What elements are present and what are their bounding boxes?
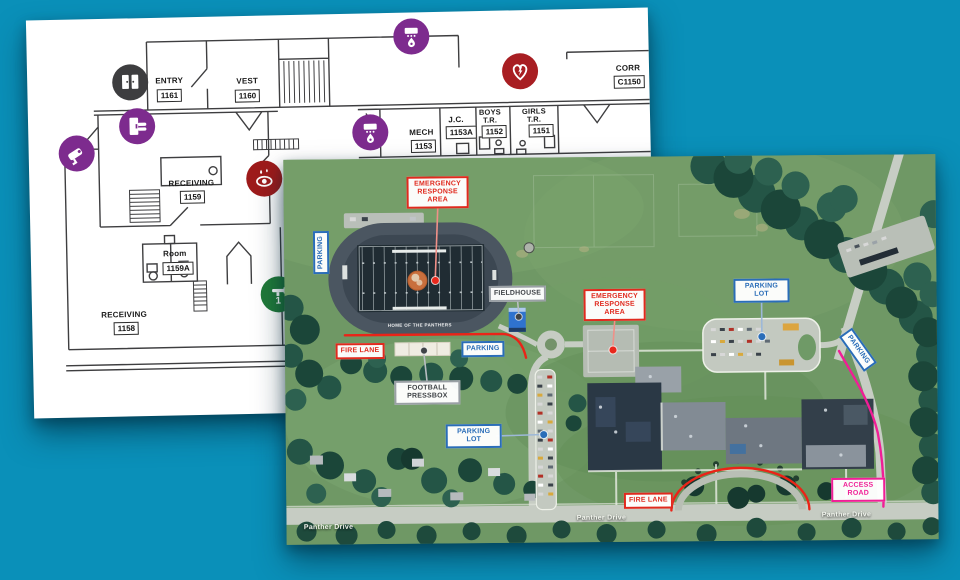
- fieldhouse-dot: [515, 313, 522, 320]
- room-number-receiving-1158: 1158: [114, 322, 140, 336]
- pressbox-dot: [420, 347, 427, 354]
- stairs-left: [129, 190, 160, 223]
- roundabout: [537, 330, 565, 358]
- hatch-strip: [253, 139, 298, 150]
- fire-lane-label-arc: FIRE LANE: [624, 492, 673, 508]
- room-number-corr: C1150: [614, 75, 645, 89]
- room-label-boys-line2: T.R.: [479, 117, 501, 126]
- street-label-panther-drive-west: Panther Drive: [304, 524, 353, 531]
- room-number-mech: 1153: [411, 139, 437, 153]
- parking-label-pressbox: PARKING: [461, 341, 504, 357]
- street-label-panther-drive-center: Panther Drive: [577, 514, 626, 521]
- parking-label-west: PARKING: [313, 231, 329, 274]
- room-label-girls: GIRLS T.R.: [522, 107, 546, 124]
- pressbox-label: FOOTBALL PRESSBOX: [394, 380, 460, 405]
- parking-lot-strip: [535, 369, 556, 509]
- room-label-entry: ENTRY: [155, 77, 183, 86]
- emergency-plan-composite: ENTRY 1161 VEST 1160 CORR C1150 MECH 115…: [0, 0, 960, 580]
- era1-dot: [431, 276, 439, 284]
- parking-lot-r-dot: [758, 333, 766, 341]
- room-label-receiving-1158: RECEIVING: [101, 311, 147, 321]
- room-number-entry: 1161: [157, 89, 183, 103]
- room-label-receiving-1159: RECEIVING: [168, 179, 214, 189]
- stairs-top: [284, 60, 325, 103]
- era-label-court: EMERGENCY RESPONSE AREA: [583, 289, 645, 322]
- room-label-jc: J.C.: [448, 116, 464, 125]
- svg-text:1: 1: [275, 295, 281, 306]
- parking-lot-label-east: PARKING LOT: [733, 278, 789, 303]
- room-label-1159a: Room: [163, 250, 187, 259]
- fire-lane-label-field: FIRE LANE: [336, 343, 385, 359]
- room-label-corr: CORR: [616, 64, 641, 73]
- room-number-boys: 1152: [482, 125, 508, 139]
- room-label-boys: BOYS T.R.: [479, 108, 501, 125]
- era-label-field: EMERGENCY RESPONSE AREA: [406, 176, 468, 209]
- room-number-girls: 1151: [529, 124, 555, 138]
- site-map-image[interactable]: EMERGENCY RESPONSE AREA EMERGENCY RESPON…: [283, 154, 938, 545]
- ladder-hatch: [193, 281, 207, 311]
- fieldhouse-label: FIELDHOUSE: [489, 286, 546, 303]
- room-number-jc: 1153A: [446, 126, 477, 140]
- round-structure: [524, 243, 534, 253]
- room-number-receiving-1159: 1159: [180, 190, 206, 204]
- parking-lot-bl-dot: [540, 431, 548, 439]
- field-text-home-of-panthers: HOME OF THE PANTHERS: [388, 323, 452, 329]
- room-number-vest: 1160: [235, 89, 261, 103]
- room-label-girls-line2: T.R.: [522, 116, 546, 125]
- room-label-vest: VEST: [236, 77, 258, 86]
- fieldhouse-leader: [518, 301, 519, 313]
- street-label-panther-drive-east: Panther Drive: [822, 511, 871, 518]
- era2-dot: [609, 346, 617, 354]
- room-number-1159a: 1159A: [162, 262, 193, 276]
- room-label-mech: MECH: [409, 129, 434, 138]
- access-road-label: ACCESS ROAD: [831, 478, 885, 503]
- parking-lot-label-south: PARKING LOT: [446, 424, 502, 449]
